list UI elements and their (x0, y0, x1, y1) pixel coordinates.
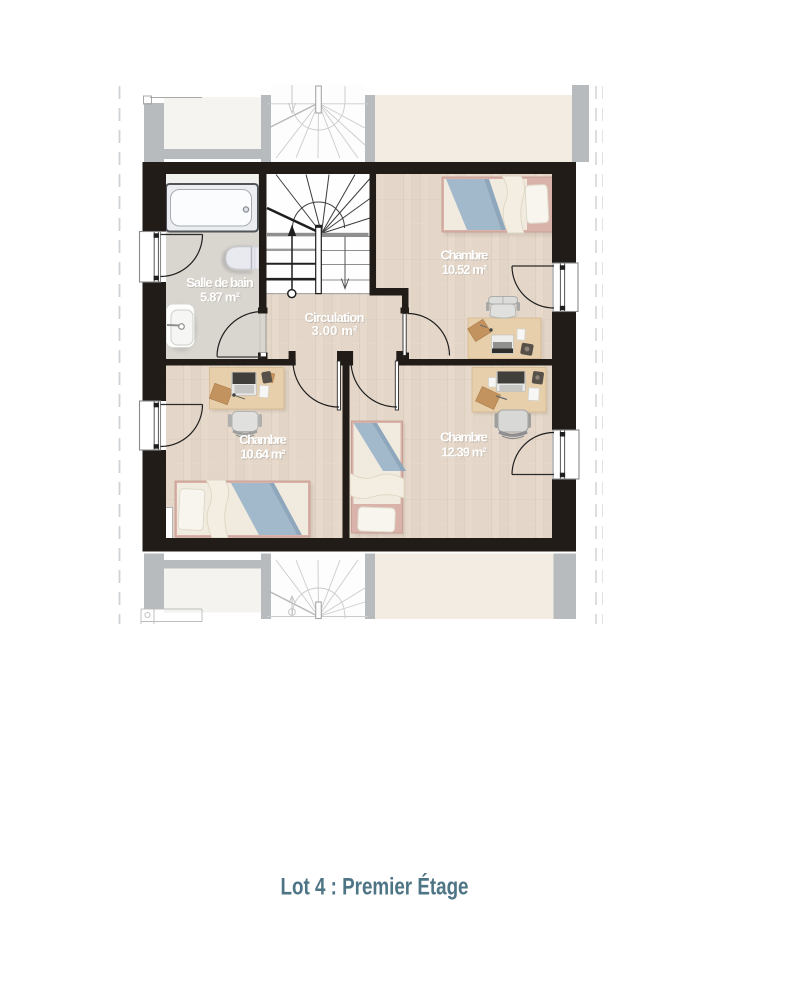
svg-text:Lot 4 : Premier Étage: Lot 4 : Premier Étage (281, 873, 469, 901)
svg-text:Chambre: Chambre (239, 432, 287, 447)
svg-text:3.00 m²: 3.00 m² (312, 323, 359, 338)
svg-text:5.87 m²: 5.87 m² (200, 289, 241, 304)
svg-text:Chambre: Chambre (440, 430, 488, 445)
svg-text:12.39 m²: 12.39 m² (441, 444, 487, 459)
svg-text:10.52 m²: 10.52 m² (442, 262, 488, 277)
svg-text:10.64 m²: 10.64 m² (240, 446, 286, 461)
svg-text:Chambre: Chambre (441, 248, 489, 263)
svg-text:Salle de bain: Salle de bain (186, 275, 254, 290)
